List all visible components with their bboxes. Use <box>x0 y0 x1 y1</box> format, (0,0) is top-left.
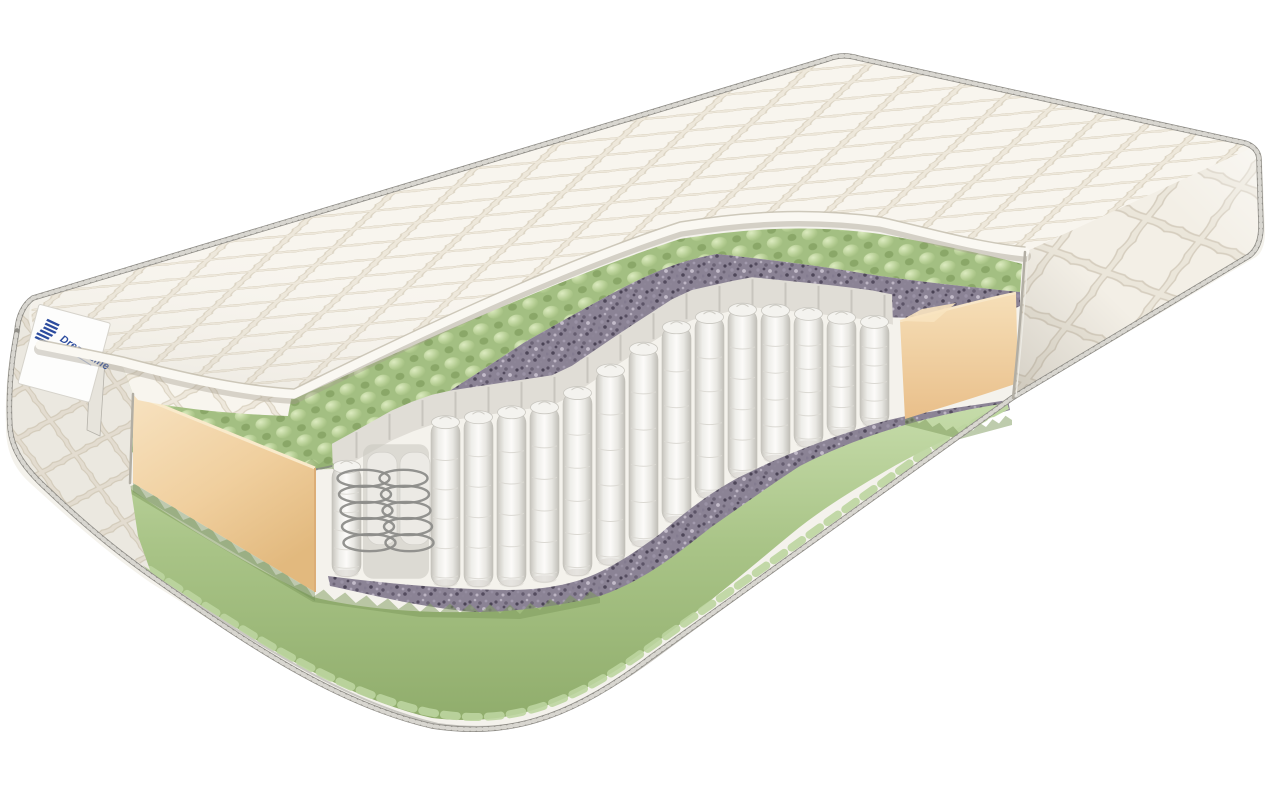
pocket-spring <box>794 307 823 448</box>
pocket-spring <box>563 387 592 577</box>
product-image-stage: DreamLine <box>0 0 1280 800</box>
pocket-spring <box>728 303 757 479</box>
mattress-cutaway-figure: DreamLine <box>0 0 1280 800</box>
pocket-spring <box>761 304 790 463</box>
pocket-spring <box>431 416 460 587</box>
pocket-spring <box>530 401 559 583</box>
pocket-spring <box>695 311 724 500</box>
pocket-spring <box>662 321 691 524</box>
pocket-spring <box>464 411 493 588</box>
pocket-spring <box>827 311 856 437</box>
pocket-spring <box>629 342 658 548</box>
pocket-spring <box>497 406 526 587</box>
pocket-spring <box>596 364 625 566</box>
pocket-spring <box>860 315 889 427</box>
